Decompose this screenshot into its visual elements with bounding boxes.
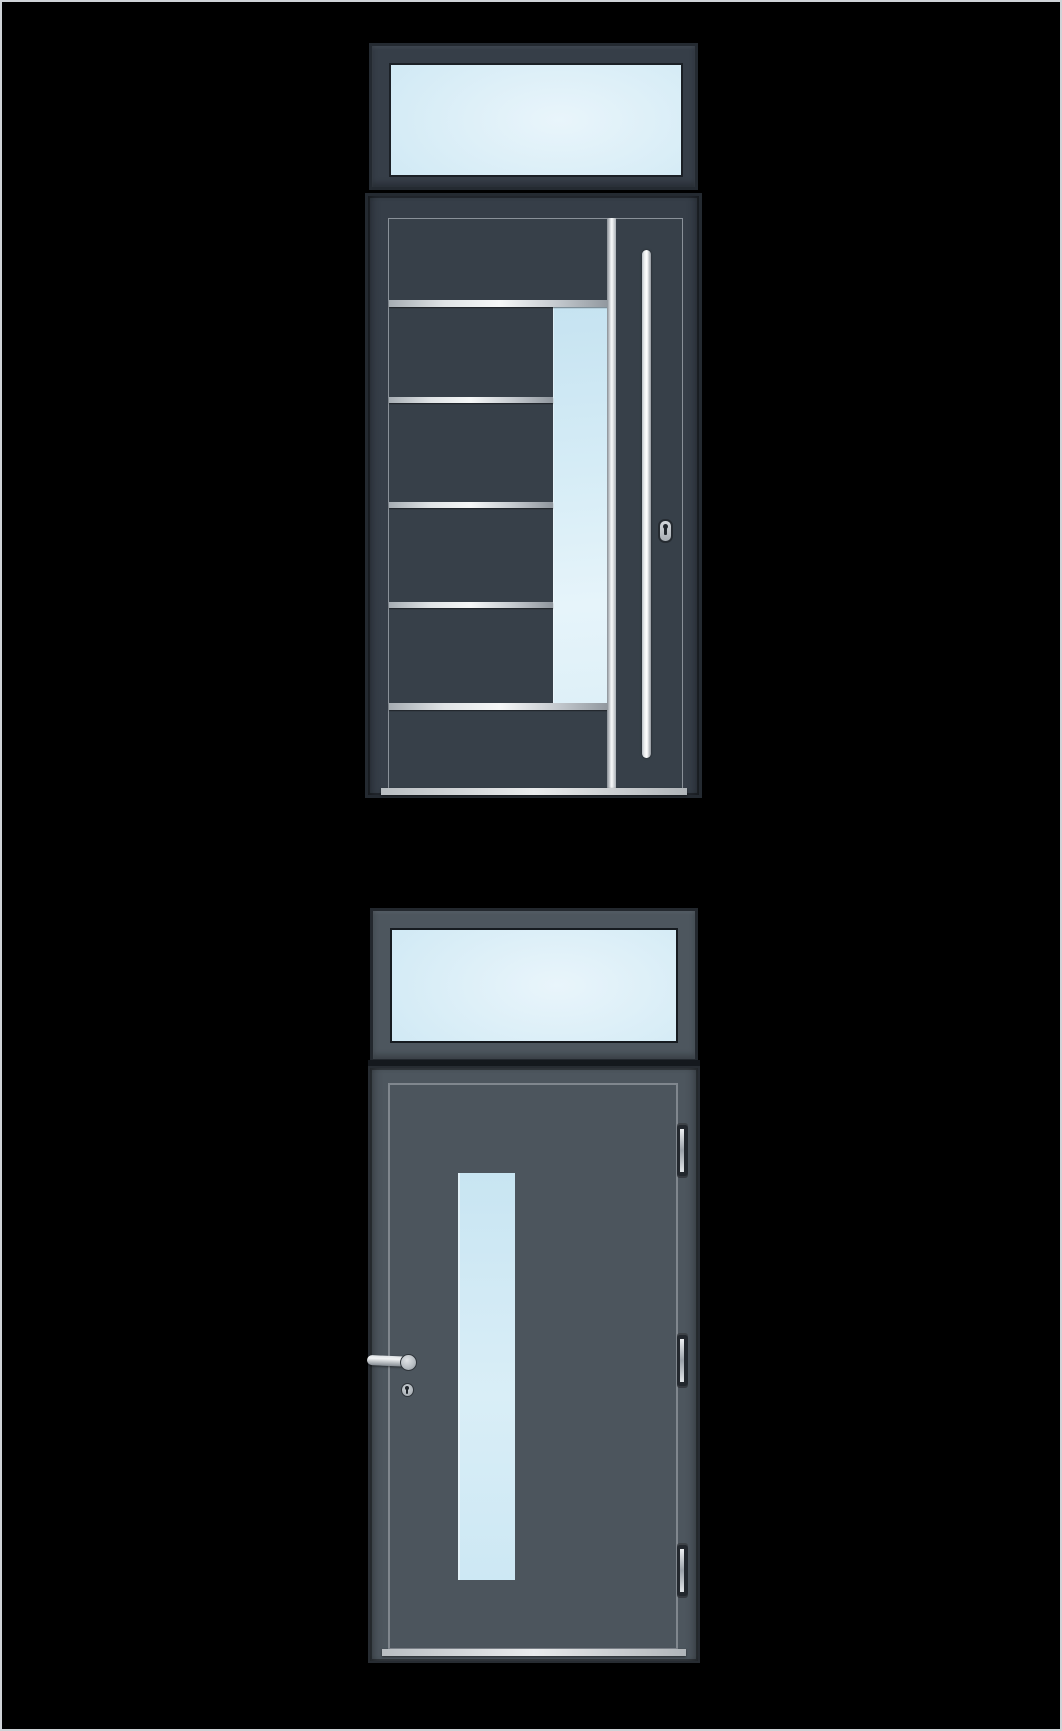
decor-stripe: [389, 602, 553, 608]
decor-stripe: [389, 397, 553, 403]
vertical-mullion-trim: [607, 218, 616, 788]
hinge-icon: [677, 1333, 688, 1388]
transom-glass: [390, 928, 678, 1043]
hinge-icon: [677, 1123, 688, 1178]
handle-rosette: [400, 1354, 417, 1371]
hinge-icon: [677, 1543, 688, 1598]
profile-cylinder-keyhole[interactable]: [401, 1383, 414, 1397]
decor-stripe: [389, 703, 610, 710]
door-sill: [381, 788, 687, 795]
transom-glass: [389, 63, 683, 177]
decor-stripe: [389, 502, 553, 508]
door-sill: [382, 1649, 686, 1656]
product-illustration-canvas: [0, 0, 1062, 1731]
door-side-glass: [553, 307, 607, 703]
keyhole-glyph: [406, 1388, 408, 1394]
decor-stripe: [389, 300, 610, 307]
bar-pull-handle[interactable]: [642, 250, 651, 758]
keyhole-glyph: [664, 527, 667, 535]
keyhole-escutcheon[interactable]: [658, 519, 673, 543]
door-leaf: [388, 1083, 678, 1650]
door-center-glass: [458, 1173, 515, 1580]
